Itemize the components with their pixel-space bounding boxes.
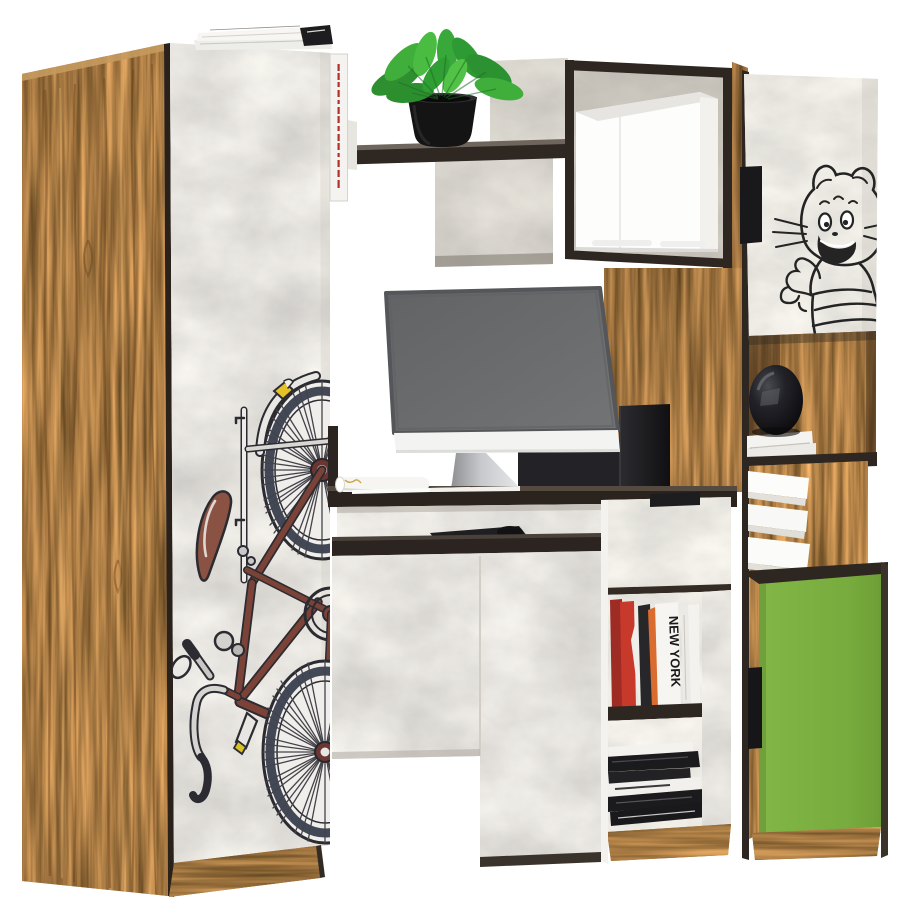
svg-text:NEW YORK: NEW YORK: [666, 616, 683, 688]
